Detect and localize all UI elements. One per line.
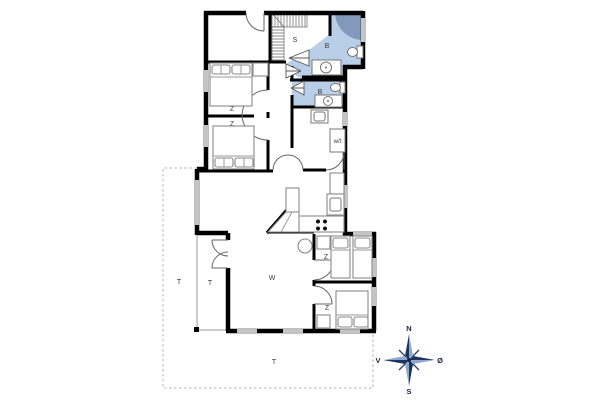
compass-south-label: S (406, 387, 411, 396)
round-table (298, 239, 312, 253)
label-terrace-south: T (272, 359, 277, 366)
kitchen-counter-diagonal (268, 212, 299, 232)
label-terrace-porch: T (208, 280, 213, 287)
room-label-bedroom-nw: Z (230, 106, 235, 113)
label-terrace-west: T (177, 279, 182, 286)
closet-nw (253, 63, 268, 76)
entrance-door (246, 13, 264, 31)
bed-w (213, 126, 254, 169)
room-label-utility: w/t (333, 139, 342, 145)
floor-plan-drawing: S B B Z Z Z Z W w/t T T T N S V Ø (0, 0, 600, 400)
wardrobe-se (317, 315, 330, 328)
compass-rose: N S V Ø (375, 324, 443, 396)
toilet-bowl (348, 48, 358, 57)
compass-north-label: N (406, 324, 411, 333)
toilet-bowl-2 (331, 84, 341, 92)
kitchen-cabinet (330, 173, 344, 194)
room-label-living: W (269, 275, 276, 282)
room-label-bedroom-se: Z (325, 305, 330, 312)
room-label-bath-middle: B (318, 89, 323, 96)
kitchen-counter (299, 216, 344, 232)
kitchen-sink (330, 198, 341, 211)
room-label-bedroom-e: Z (324, 254, 329, 261)
utility-fixtures (311, 110, 345, 152)
wardrobe-e (317, 236, 330, 249)
utility-door (326, 152, 344, 170)
room-label-bath-top: B (325, 43, 330, 50)
hall-double-door (273, 155, 303, 170)
kitchen-counter-west (286, 188, 299, 212)
room-label-sauna: S (293, 37, 298, 44)
compass-east-label: Ø (437, 356, 443, 365)
bed-nw (210, 63, 268, 106)
compass-west-label: V (375, 356, 380, 365)
floor-plan-page: S B B Z Z Z Z W w/t T T T N S V Ø (0, 0, 600, 400)
bedroom-se-door (314, 286, 332, 304)
french-doors (212, 240, 228, 268)
room-label-bedroom-w: Z (230, 121, 235, 128)
